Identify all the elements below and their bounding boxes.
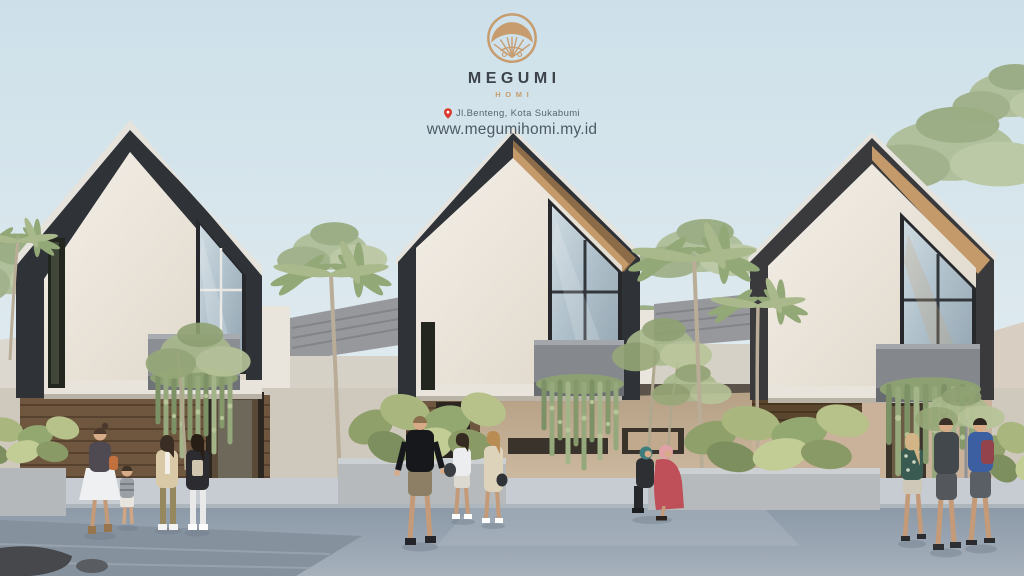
property-poster: MEGUMI HOMI Jl.Benteng, Kota Sukabumi ww… [0,0,1024,576]
address-row: Jl.Benteng, Kota Sukabumi [0,108,1024,119]
website-url: www.megumihomi.my.id [0,121,1024,139]
brand-name: MEGUMI [0,70,1024,88]
branding-header: MEGUMI HOMI Jl.Benteng, Kota Sukabumi ww… [0,12,1024,139]
location-pin-icon [444,108,452,119]
fan-circle-logo-icon [481,12,543,68]
brand-subname: HOMI [0,90,1024,99]
address-text: Jl.Benteng, Kota Sukabumi [456,108,580,119]
